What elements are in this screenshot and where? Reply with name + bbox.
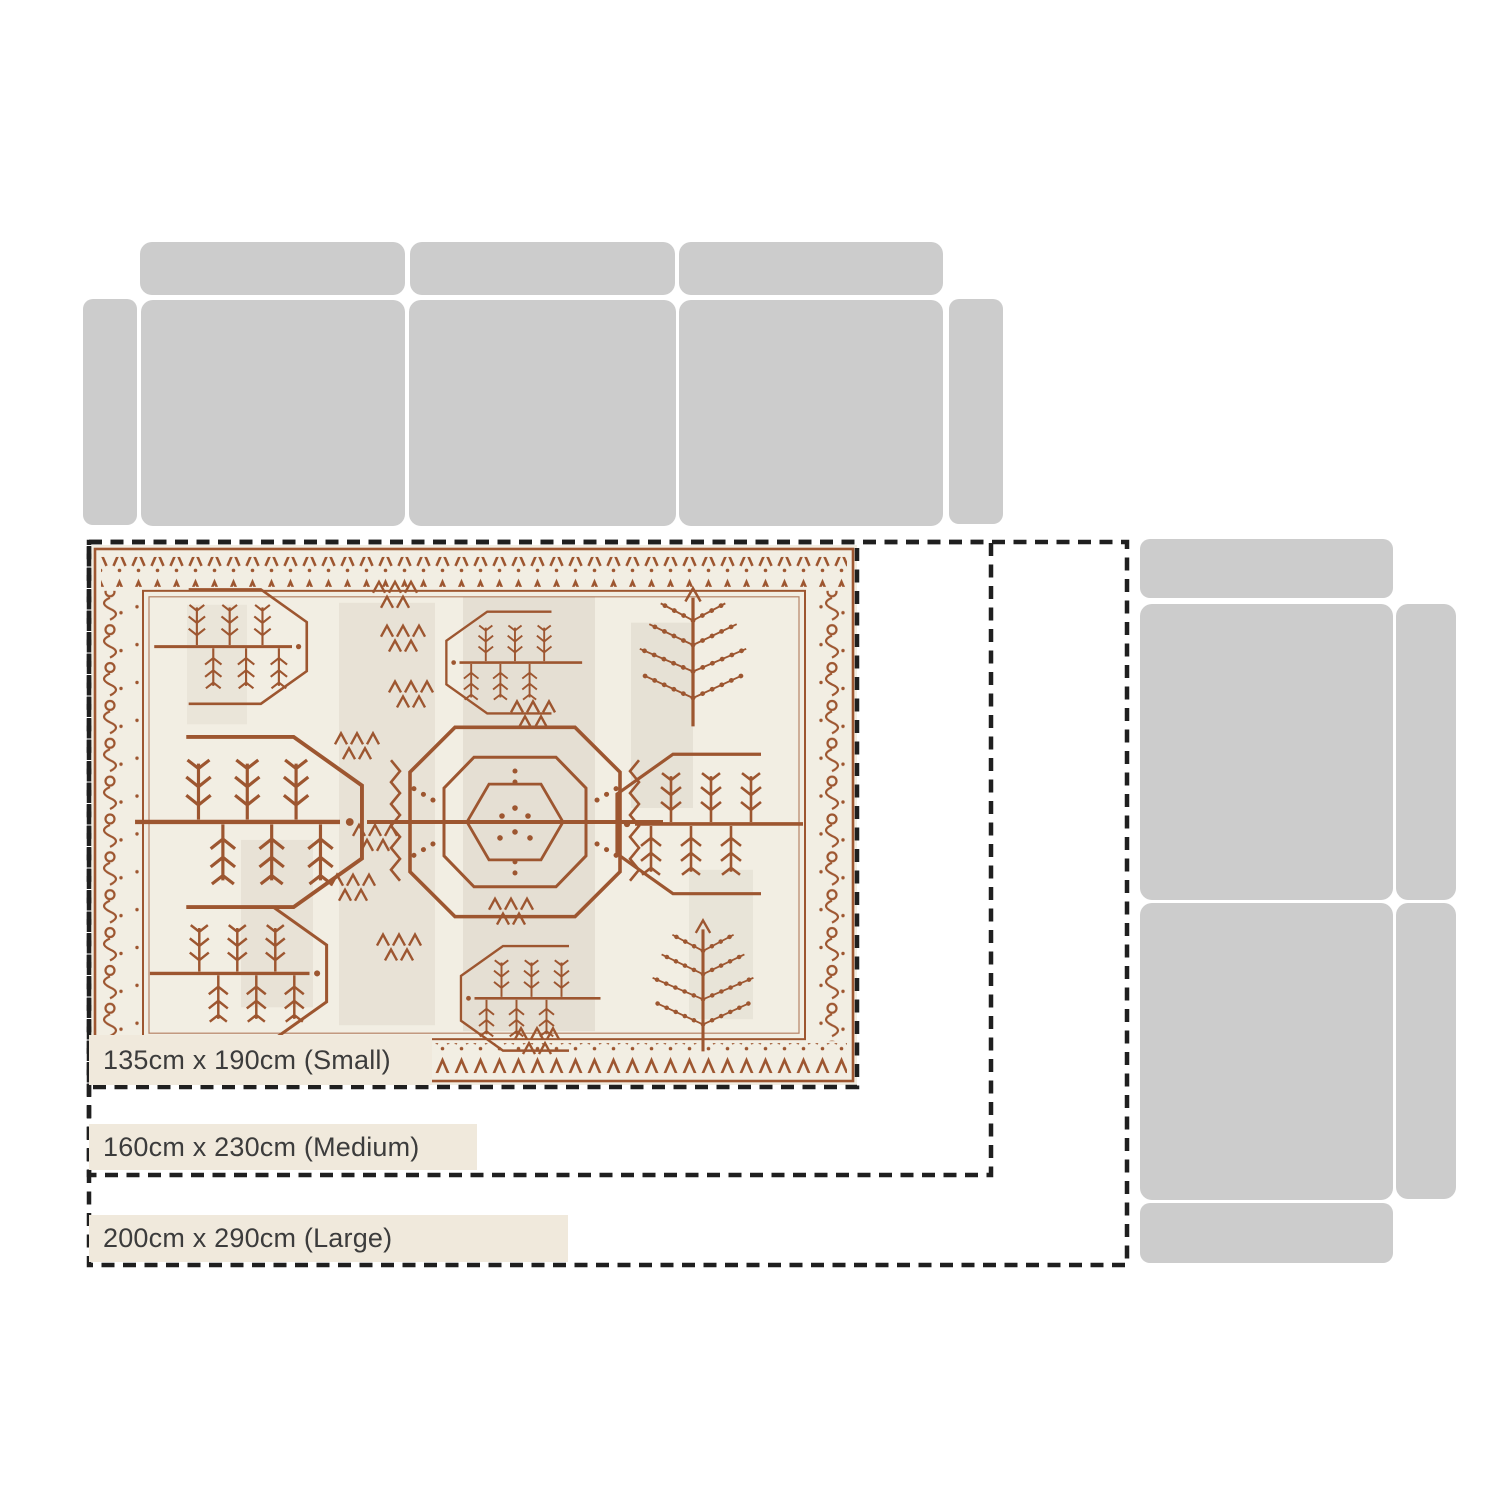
- size-label-large-text: 200cm x 290cm (Large): [103, 1225, 392, 1252]
- sofa-top-armrest-left: [83, 299, 137, 525]
- sofa-top-back-cushion-1: [140, 242, 405, 295]
- sofa-top-back-cushion-2: [410, 242, 675, 295]
- sofa-right-armrest-top: [1140, 539, 1393, 598]
- sofa-top-seat-cushion-2: [409, 300, 676, 526]
- sofa-right-back-cushion-2: [1396, 903, 1456, 1199]
- rug-image: [91, 545, 857, 1085]
- size-label-medium: 160cm x 230cm (Medium): [89, 1124, 477, 1170]
- size-label-large: 200cm x 290cm (Large): [89, 1215, 568, 1262]
- sofa-right-seat-cushion-1: [1140, 604, 1393, 900]
- size-label-small: 135cm x 190cm (Small): [89, 1035, 432, 1085]
- sofa-top-back-cushion-3: [679, 242, 943, 295]
- size-label-small-text: 135cm x 190cm (Small): [103, 1047, 391, 1074]
- sofa-right-armrest-bottom: [1140, 1203, 1393, 1263]
- sofa-right-back-cushion-1: [1396, 604, 1456, 900]
- sofa-top-seat-cushion-1: [141, 300, 405, 526]
- size-label-medium-text: 160cm x 230cm (Medium): [103, 1134, 420, 1161]
- sofa-top-seat-cushion-3: [679, 300, 943, 526]
- sofa-top-armrest-right: [949, 299, 1003, 524]
- sofa-right-seat-cushion-2: [1140, 903, 1393, 1200]
- rug-size-guide: 135cm x 190cm (Small) 160cm x 230cm (Med…: [0, 0, 1500, 1496]
